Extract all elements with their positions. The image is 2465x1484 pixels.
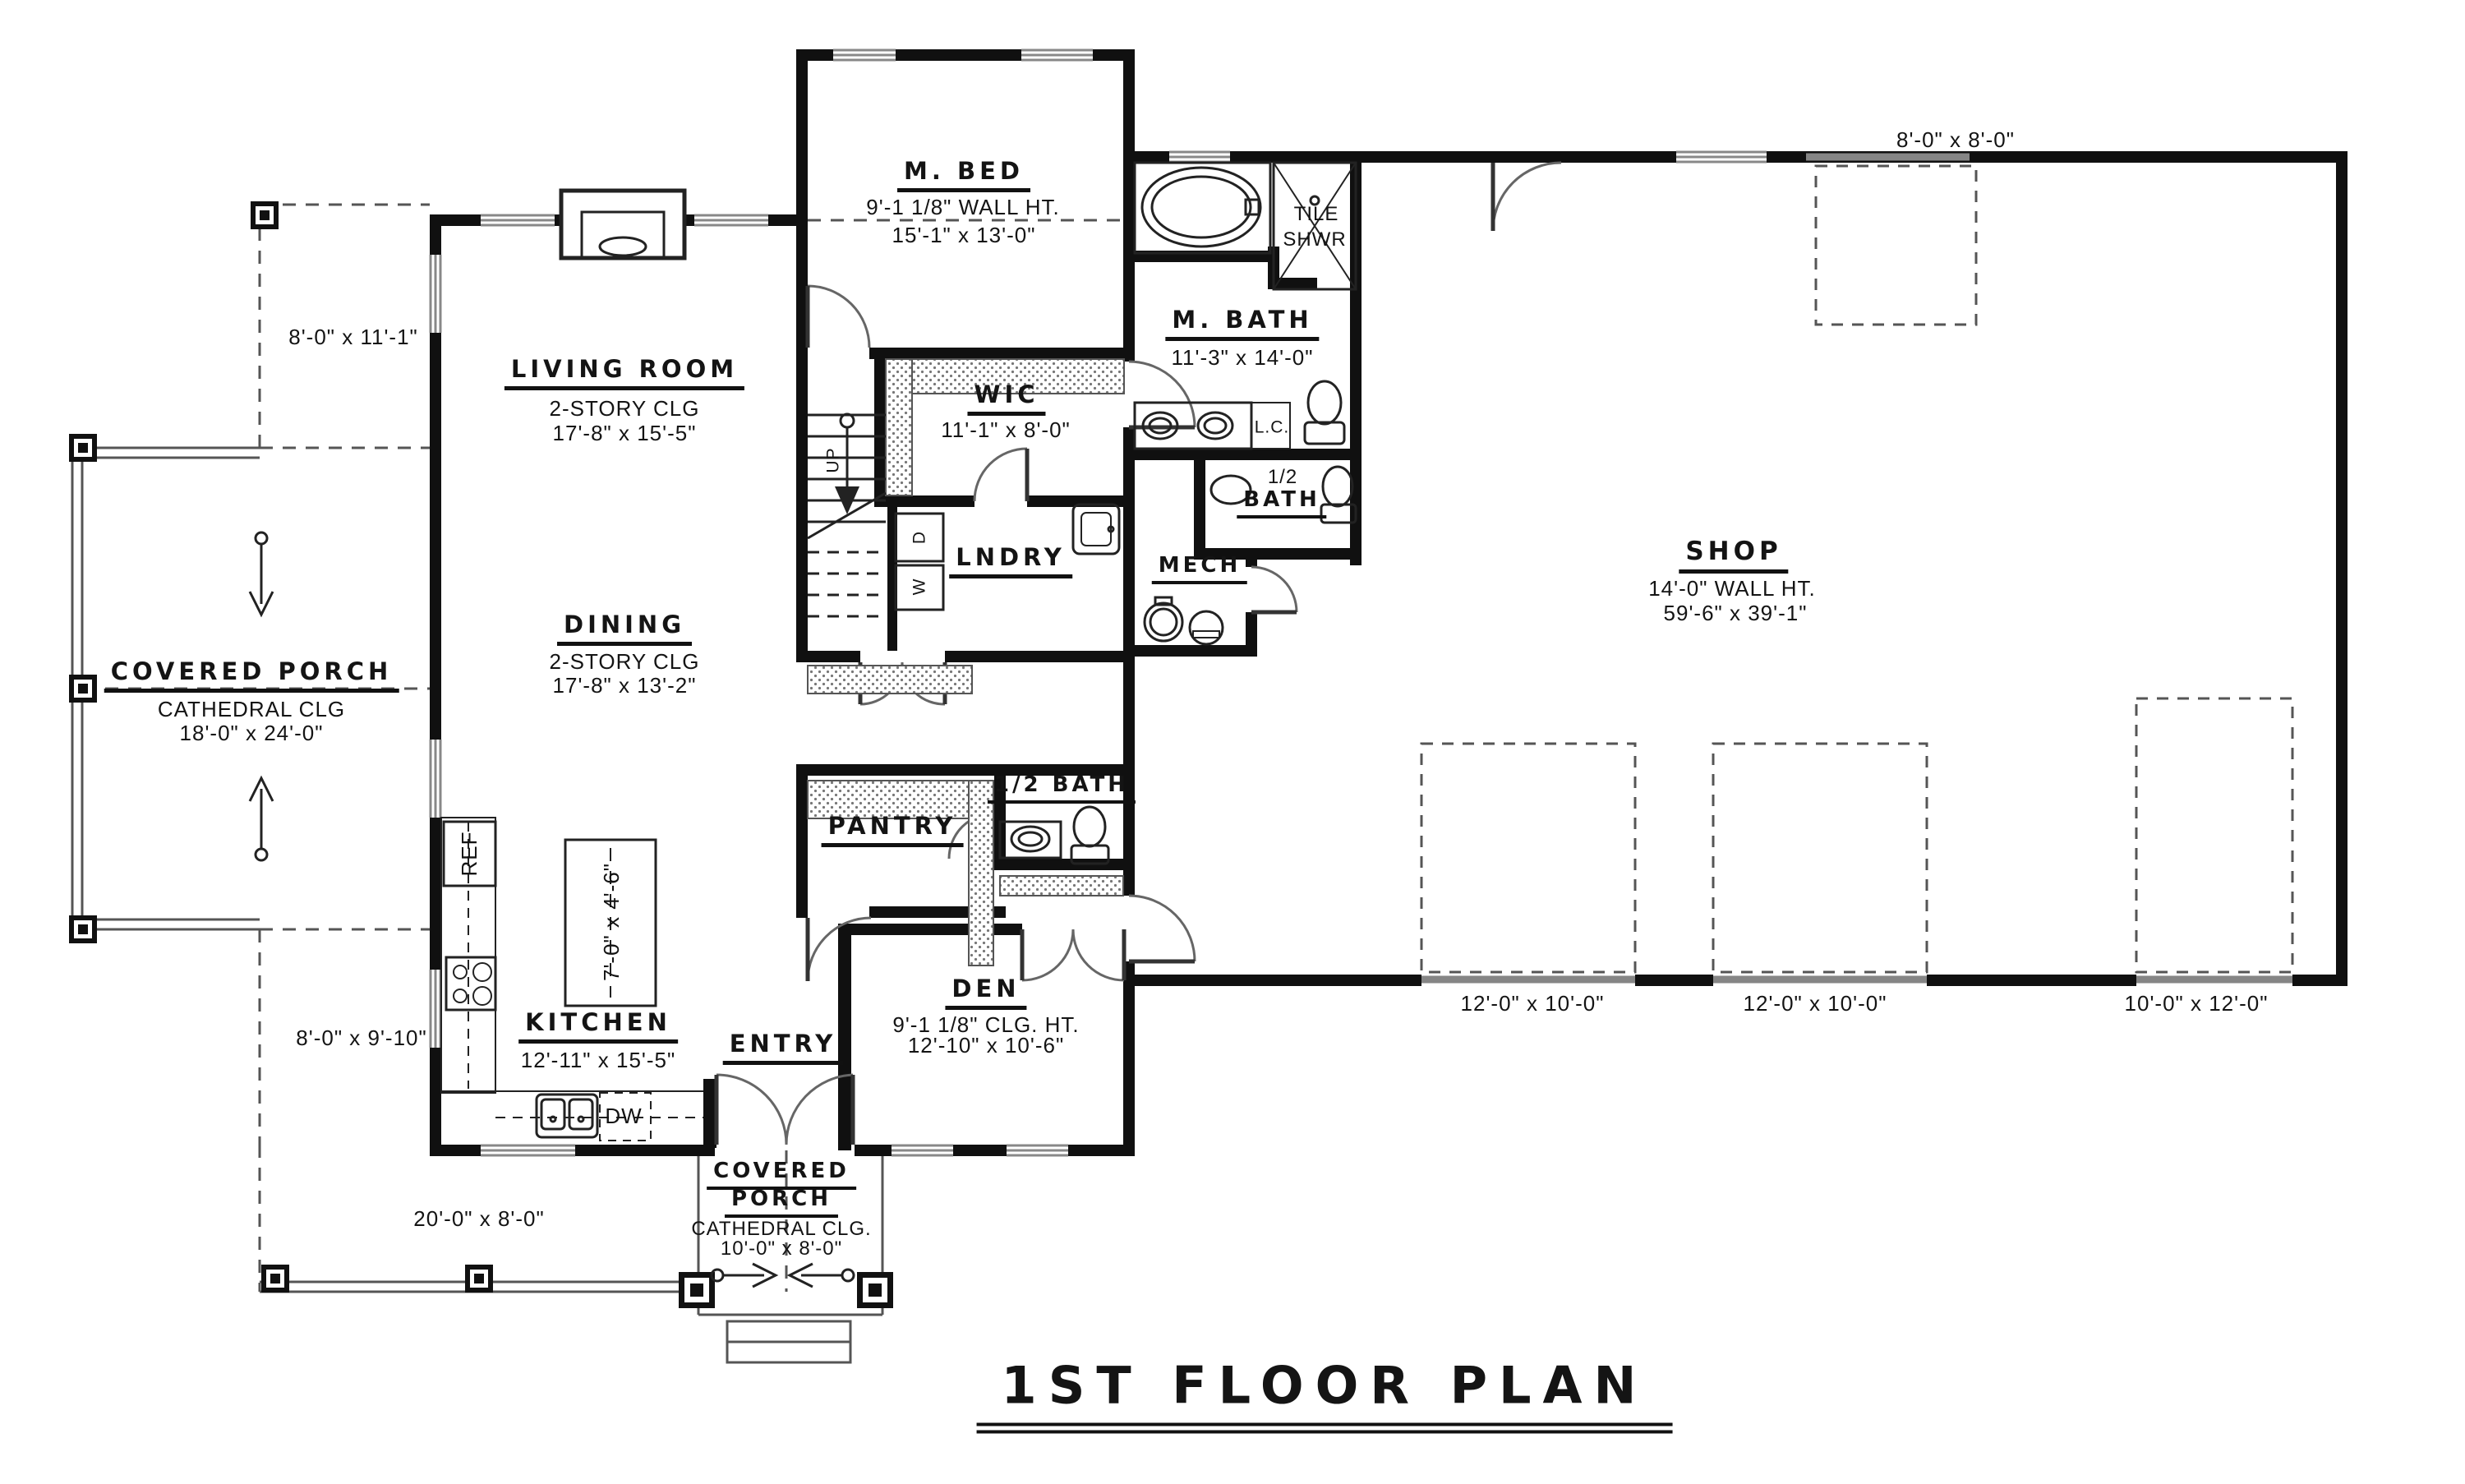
entry-arrow-left	[790, 1264, 854, 1287]
den-closet-shelf	[1000, 876, 1123, 896]
master-toilet	[1305, 381, 1344, 444]
label-stairs-up: UP	[825, 447, 842, 472]
door-arc-mbed	[808, 286, 869, 348]
wic-shelf-left	[886, 359, 912, 495]
room-label-wic: WIC	[967, 383, 1045, 416]
porch-posts	[69, 201, 893, 1308]
post	[261, 1265, 289, 1293]
window-top-left-1	[481, 213, 555, 228]
garage-door-lines	[1421, 157, 2292, 979]
dim-porch-lower-left: 8'-0" x 9'-10"	[296, 1027, 426, 1048]
post	[857, 1272, 893, 1308]
wall-hall-south-1	[796, 651, 860, 662]
label-porch-entry-2: PORCH	[725, 1188, 838, 1218]
porch-arrow-down	[250, 532, 273, 615]
master-tub	[1135, 163, 1270, 253]
room-label-m-bath: M. BATH	[1165, 308, 1319, 341]
window-left-1	[428, 255, 443, 333]
dim-island: 7'-0" x 4'-6"	[601, 863, 622, 981]
room-dims-dining: 17'-8" x 13'-2"	[553, 675, 697, 696]
post	[251, 201, 279, 229]
wall-mbed-east-upper	[1123, 49, 1135, 163]
label-dw: DW	[605, 1105, 642, 1127]
floor-plan-drawing	[0, 0, 2465, 1484]
label-tile: TILE	[1294, 205, 1339, 224]
door-arc-mech	[1251, 567, 1297, 612]
post	[69, 434, 97, 462]
window-bottom-1	[481, 1143, 575, 1158]
washer-dryer	[896, 514, 943, 610]
wall-shop-bottom-2	[1635, 975, 1713, 986]
label-shwr: SHWR	[1283, 230, 1346, 250]
wall-pantry-west	[796, 764, 808, 918]
mud-bench	[808, 666, 972, 694]
door-arc-entry-left	[716, 1075, 786, 1145]
door-arc-wic	[974, 449, 1027, 501]
halfbath-main-toilet	[1074, 807, 1105, 846]
room-label-mech: MECH	[1152, 555, 1247, 584]
pantry-shelf-right	[969, 781, 993, 966]
room-note-living-room: 2-STORY CLG	[550, 398, 700, 419]
plan-title: 1ST FLOOR PLAN	[977, 1361, 1673, 1434]
room-label-kitchen: KITCHEN	[518, 1011, 678, 1044]
post	[69, 915, 97, 943]
dim-bay2: 12'-0" x 10'-0"	[1744, 993, 1887, 1014]
room-label-pantry: PANTRY	[822, 814, 964, 847]
room-label-m-bed: M. BED	[897, 159, 1030, 192]
porch-arrow-up	[250, 778, 273, 860]
wall-shop-bottom-3	[1927, 975, 2136, 986]
kitchen-south-counter	[441, 1091, 703, 1141]
wall-mech-south	[1129, 645, 1257, 657]
bay1-outline	[1421, 744, 1635, 972]
room-note-shop: 14'-0" WALL HT.	[1648, 578, 1816, 599]
wall-shop-bottom-4	[2292, 975, 2348, 986]
room-label-entry: ENTRY	[723, 1032, 844, 1065]
room-label-porch-left: COVERED PORCH	[104, 660, 399, 693]
entry-arrow-right	[712, 1264, 776, 1287]
window-mbed-2	[1021, 48, 1093, 62]
door-arc-shop-mandoor	[1493, 163, 1561, 231]
window-left-2	[428, 740, 443, 818]
room-dims-wic: 11'-1" x 8'-0"	[941, 419, 1071, 440]
tile-shower	[1274, 163, 1356, 289]
wall-vanity-south	[1129, 449, 1362, 460]
label-halfbath-upper-1: 1/2	[1268, 468, 1297, 487]
wall-shop-bottom-1	[1123, 975, 1421, 986]
fireplace	[561, 191, 684, 258]
label-linen-closet: L.C.	[1255, 419, 1290, 436]
wall-halfbath-upper-west	[1194, 454, 1205, 560]
room-dims-porch-left: 18'-0" x 24'-0"	[180, 722, 324, 744]
laundry-sink	[1073, 505, 1119, 554]
label-ref: REF	[458, 832, 480, 877]
wall-wic-west	[874, 348, 886, 507]
dim-bay3: 10'-0" x 12'-0"	[2125, 993, 2269, 1014]
wall-mbed-south	[869, 348, 1135, 359]
room-dims-m-bath: 11'-3" x 14'-0"	[1172, 347, 1314, 368]
door-arc-shop	[1129, 896, 1195, 961]
room-note-dining: 2-STORY CLG	[550, 651, 700, 672]
label-dryer: D	[911, 531, 928, 544]
room-label-dining: DINING	[557, 613, 692, 646]
room-dims-kitchen: 12'-11" x 15'-5"	[521, 1049, 675, 1071]
dim-porch-upper-left: 8'-0" x 11'-1"	[288, 326, 418, 348]
rear-bay-outline	[1816, 166, 1976, 325]
door-arc-den-right	[1073, 929, 1124, 980]
mech-equipment	[1145, 597, 1223, 644]
room-note-m-bed: 9'-1 1/8" WALL HT.	[866, 196, 1059, 218]
note-porch-entry: CATHEDRAL CLG.	[691, 1219, 871, 1239]
room-dims-shop: 59'-6" x 39'-1"	[1664, 602, 1808, 624]
post	[679, 1272, 715, 1308]
wall-mbed-west	[796, 49, 808, 226]
kitchen-sink	[537, 1095, 597, 1137]
dim-porch-bottom: 20'-0" x 8'-0"	[413, 1208, 544, 1229]
window-mbed-1	[833, 48, 896, 62]
wall-den-north	[851, 924, 1022, 935]
room-label-living-room: LIVING ROOM	[505, 357, 744, 390]
room-label-lndry: LNDRY	[949, 546, 1072, 578]
wall-hall-south-2	[945, 651, 1135, 662]
room-label-halfbath-main: 1/2 BATH	[988, 774, 1136, 804]
floor-plan-page: { "plan_title": "1ST FLOOR PLAN", "rooms…	[0, 0, 2465, 1484]
halfbath-upper-toilet	[1323, 467, 1352, 506]
window-shop	[1676, 150, 1767, 164]
window-den-2	[1007, 1143, 1068, 1158]
wall-spine-lower	[1123, 961, 1135, 1150]
room-note-porch-left: CATHEDRAL CLG	[158, 698, 345, 720]
water-heater-2	[1190, 611, 1223, 644]
halfbath-main-fixtures	[1000, 807, 1108, 864]
window-top-left-2	[694, 213, 768, 228]
wall-exterior-right	[2336, 151, 2348, 986]
door-arc-den-left	[1022, 929, 1073, 980]
room-dims-living-room: 17'-8" x 15'-5"	[553, 422, 697, 444]
room-dims-den: 12'-10" x 10'-6"	[908, 1035, 1064, 1056]
room-label-den: DEN	[945, 977, 1026, 1010]
post	[69, 675, 97, 703]
label-washer: W	[911, 578, 928, 596]
room-label-shop: SHOP	[1679, 539, 1788, 574]
label-porch-entry-1: COVERED	[707, 1160, 856, 1190]
bay3-outline	[2136, 698, 2292, 972]
room-dims-m-bed: 15'-1" x 13'-0"	[892, 224, 1036, 246]
label-halfbath-upper-2: BATH	[1237, 489, 1326, 518]
post	[465, 1265, 493, 1293]
shop-bays	[1421, 166, 2292, 972]
window-den-1	[892, 1143, 953, 1158]
wall-halfbath-main-south	[994, 859, 1135, 870]
stairs	[808, 414, 886, 616]
dims-porch-entry: 10'-0" x 8'-0"	[721, 1239, 842, 1259]
bay2-outline	[1713, 744, 1927, 972]
dim-bay1: 12'-0" x 10'-0"	[1461, 993, 1605, 1014]
dim-shop-rear-door: 8'-0" x 8'-0"	[1896, 129, 2015, 150]
